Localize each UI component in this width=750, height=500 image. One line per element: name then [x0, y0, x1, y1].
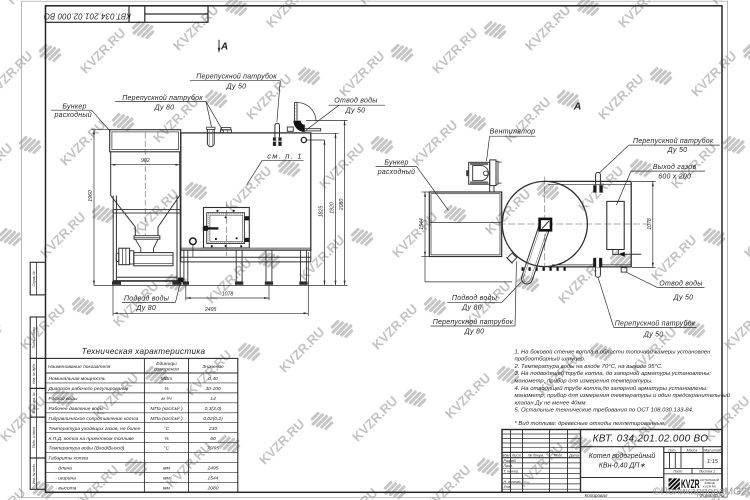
svg-text:1078: 1078: [222, 291, 234, 297]
svg-text:№ докум.: № докум.: [528, 453, 544, 457]
svg-text:1960: 1960: [88, 190, 94, 202]
svg-text:30-100: 30-100: [205, 386, 221, 392]
svg-text:МВт: МВт: [161, 376, 172, 382]
svg-text:Перепускной патрубок: Перепускной патрубок: [633, 137, 714, 145]
svg-text:%: %: [164, 386, 169, 392]
svg-text:°С: °С: [164, 446, 170, 452]
svg-text:2080: 2080: [339, 199, 345, 212]
svg-text:* Вид топлива: древесные отх: * Вид топлива: древесные отходы пеллетир…: [515, 421, 666, 427]
svg-text:230: 230: [208, 426, 217, 432]
svg-text:КВн-0,40 ДП∗: КВн-0,40 ДП∗: [599, 463, 646, 470]
svg-text:расходный: расходный: [53, 111, 91, 119]
svg-text:м ³/ч: м ³/ч: [161, 396, 172, 402]
svg-text:Бункер: Бункер: [62, 104, 86, 111]
svg-text:Температура уходящих газов, не: Температура уходящих газов, не более: [49, 426, 141, 432]
svg-text:2495: 2495: [207, 466, 219, 472]
svg-text:Ду 50: Ду 50: [673, 294, 694, 301]
svg-text:Перепускной патрубок: Перепускной патрубок: [615, 320, 696, 328]
svg-text:1078: 1078: [647, 218, 653, 230]
svg-text:80: 80: [210, 436, 216, 442]
svg-text:Выход газов: Выход газов: [653, 163, 697, 171]
svg-text:К.П.Д. котла на проектном топл: К.П.Д. котла на проектном топливе: [49, 436, 135, 442]
svg-text:1. На боковой стенке котла в: 1. На боковой стенке котла в области топ…: [515, 348, 712, 355]
svg-text:мм: мм: [163, 467, 170, 472]
svg-text:©ПоликарповаМG2021: ©ПоликарповаМG2021: [653, 487, 750, 498]
svg-text:Лист: Лист: [511, 453, 521, 457]
svg-text:1544: 1544: [208, 476, 219, 482]
svg-text:- высота: - высота: [49, 487, 77, 492]
svg-text:Подп. и дата: Подп. и дата: [32, 427, 36, 448]
svg-text:°С: °С: [164, 426, 170, 432]
svg-text:клапан Ду не менее 40мм.: клапан Ду не менее 40мм.: [515, 400, 588, 406]
svg-text:Отвод воды: Отвод воды: [659, 279, 703, 287]
svg-text:Значение: Значение: [202, 364, 224, 370]
svg-text:1:15: 1:15: [707, 459, 719, 465]
svg-text:манометр, прибор для измерения: манометр, прибор для измерения температу…: [515, 379, 653, 385]
svg-text:МПа (кгс/см² ): МПа (кгс/см² ): [150, 406, 183, 412]
svg-text:Гидравлическое сопротивление к: Гидравлическое сопротивление котла: [49, 416, 139, 422]
svg-text:0,02(0,2): 0,02(0,2): [203, 416, 223, 422]
svg-text:Т. контр.: Т. контр.: [504, 469, 520, 473]
svg-text:Подвод воды: Подвод воды: [124, 294, 170, 302]
svg-text:Подп.: Подп.: [554, 453, 564, 457]
svg-text:2. Температура воды на входе: 2. Температура воды на входе 70°С, на вы…: [514, 364, 663, 370]
svg-text:Лист: Лист: [672, 470, 682, 474]
svg-text:Инв. № подл.: Инв. № подл.: [32, 463, 36, 484]
svg-text:Утв.: Утв.: [504, 485, 512, 489]
svg-text:%: %: [164, 436, 169, 442]
svg-text:см. п. 1: см. п. 1: [267, 151, 302, 160]
svg-text:мм: мм: [163, 477, 170, 482]
svg-text:600 х 200: 600 х 200: [658, 174, 691, 181]
svg-text:Вентилятор: Вентилятор: [490, 129, 536, 136]
svg-text:4. На отводящей трубе котла,д: 4. На отводящей трубе котла,до запорной …: [515, 385, 709, 392]
svg-text:Взам. инв. №: Взам. инв. №: [32, 392, 36, 413]
svg-text:Перепускной патрубок: Перепускной патрубок: [196, 73, 277, 81]
svg-text:- ширина: - ширина: [49, 477, 77, 482]
svg-text:КВТ.034.201.02.000 ВО: КВТ.034.201.02.000 ВО: [44, 12, 131, 21]
svg-text:Масштаб: Масштаб: [704, 448, 722, 452]
svg-text:Подп. и дата: Подп. и дата: [32, 327, 36, 348]
svg-text:Рабочее давление воды: Рабочее давление воды: [49, 406, 104, 412]
svg-text:Листов 1: Листов 1: [698, 470, 715, 474]
svg-text:1920: 1920: [330, 202, 336, 214]
svg-text:Расход воды: Расход воды: [49, 396, 78, 402]
svg-text:Масса: Масса: [687, 448, 698, 452]
svg-text:Котел водогрейный: Котел водогрейный: [589, 452, 656, 460]
svg-text:70/95: 70/95: [207, 446, 220, 452]
svg-text:манометр, прибор для измерения: манометр, прибор для измерения температу…: [515, 392, 731, 399]
svg-text:Справ. №: Справ. №: [32, 271, 36, 287]
svg-text:Разраб.: Разраб.: [504, 459, 517, 463]
svg-text:Наименование показателя: Наименование показателя: [48, 364, 111, 370]
svg-text:Перепускной патрубок: Перепускной патрубок: [122, 94, 203, 102]
svg-text:Отвод воды: Отвод воды: [334, 97, 378, 105]
svg-text:Подвод воды: Подвод воды: [452, 294, 498, 302]
svg-text:Ду 50: Ду 50: [345, 108, 366, 115]
svg-text:Пров.: Пров.: [504, 464, 513, 468]
svg-text:2080: 2080: [207, 486, 219, 492]
svg-text:Номинальная мощность: Номинальная мощность: [49, 376, 107, 382]
svg-text:КВТ. 034.201.02.000 ВО: КВТ. 034.201.02.000 ВО: [593, 434, 709, 445]
svg-text:5. Остальные технические треб: 5. Остальные технические требования по О…: [515, 408, 694, 414]
svg-text:А: А: [220, 42, 228, 53]
svg-text:МПа (кгс/см² ): МПа (кгс/см² ): [150, 416, 183, 422]
svg-text:Ду 80: Ду 80: [464, 328, 485, 335]
svg-text:Температура воды (Вход/Выход): Температура воды (Вход/Выход): [49, 446, 125, 452]
svg-text:2495: 2495: [204, 307, 217, 313]
svg-text:Диапазон рабочего регулировани: Диапазон рабочего регулирования: [48, 386, 129, 392]
svg-text:3. На подводящей трубе котла,: 3. На подводящей трубе котла, до запорно…: [515, 370, 712, 377]
svg-text:Инв. № дубл.: Инв. № дубл.: [32, 363, 36, 384]
svg-text:Бункер: Бункер: [384, 159, 408, 166]
svg-text:Единицы: Единицы: [156, 361, 177, 367]
svg-text:Дата: Дата: [568, 453, 578, 457]
svg-text:14: 14: [210, 396, 216, 402]
svg-text:Перепускной патрубок: Перепускной патрубок: [433, 318, 514, 326]
svg-text:измерения: измерения: [154, 368, 179, 373]
svg-text:Ду 50: Ду 50: [226, 84, 247, 91]
svg-text:Н. контр.: Н. контр.: [504, 480, 520, 484]
svg-text:Ду 80: Ду 80: [136, 305, 157, 312]
svg-text:Ду 80: Ду 80: [461, 305, 482, 312]
svg-text:расходный: расходный: [377, 168, 415, 176]
svg-text:мм: мм: [163, 487, 170, 492]
svg-text:0,3(3,0): 0,3(3,0): [205, 406, 222, 412]
svg-text:Ду 80: Ду 80: [154, 105, 175, 112]
svg-text:Лит.: Лит.: [667, 448, 676, 452]
svg-text:А: А: [573, 101, 582, 113]
svg-text:Изм: Изм: [503, 453, 510, 457]
svg-text:Габариты котла: Габариты котла: [49, 456, 89, 462]
svg-text:1544: 1544: [419, 218, 425, 230]
svg-text:Ду 50: Ду 50: [667, 147, 688, 154]
svg-text:0,40: 0,40: [208, 376, 218, 382]
svg-text:Техническая характеристика: Техническая характеристика: [82, 347, 206, 356]
svg-text:1825: 1825: [319, 206, 325, 218]
svg-text:Ду 50: Ду 50: [643, 331, 664, 338]
svg-text:Копировал: Копировал: [585, 493, 608, 498]
svg-text:пробоотборный штуцер.: пробоотборный штуцер.: [515, 356, 586, 363]
svg-text:- длина: - длина: [49, 466, 73, 472]
